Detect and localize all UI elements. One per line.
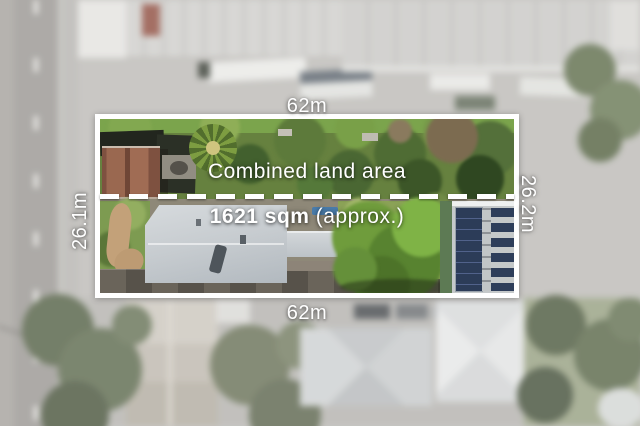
lot-divider-dashed-line: [100, 194, 514, 199]
top-width-label: 62m: [95, 94, 519, 118]
area-value-bold: 1621 sqm: [210, 205, 310, 228]
aerial-property-photo: 62m 62m 26.1m 26.2m Combined land area 1…: [0, 0, 640, 426]
left-depth-label: 26.1m: [68, 176, 92, 266]
land-area-value: 1621 sqm(approx.): [95, 205, 519, 229]
bottom-width-label: 62m: [95, 301, 519, 325]
area-qualifier: (approx.): [316, 205, 405, 228]
right-depth-label: 26.2m: [516, 159, 540, 249]
combined-land-area-title: Combined land area: [95, 160, 519, 184]
